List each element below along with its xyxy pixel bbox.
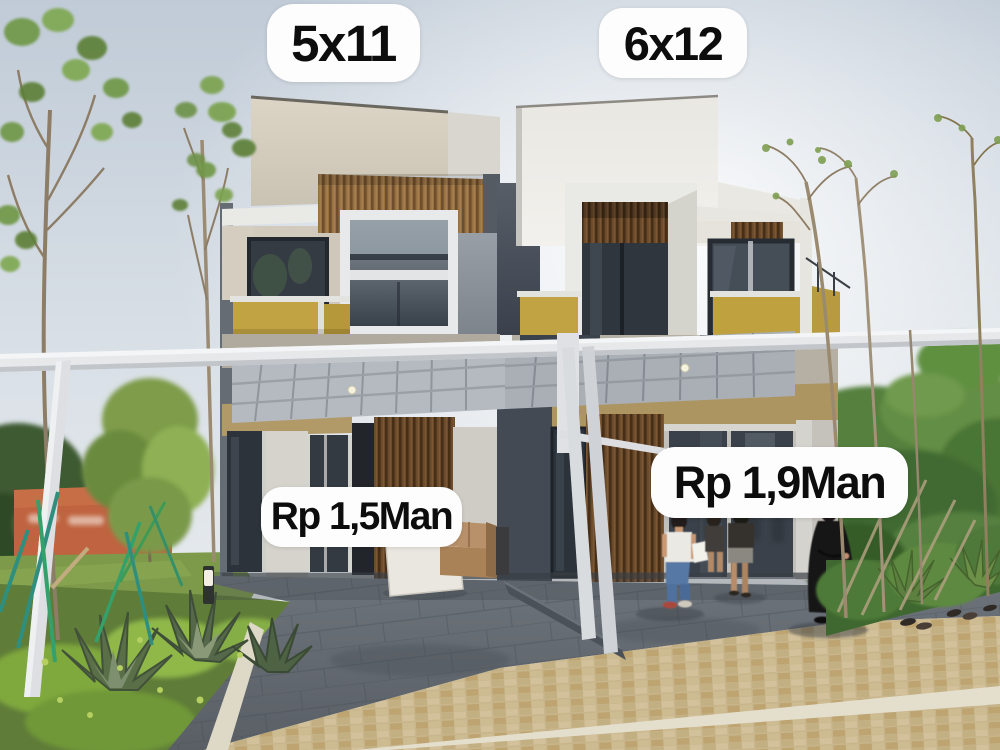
price-label-left-house: Rp 1,5Man — [261, 487, 462, 547]
canopy-light — [348, 386, 356, 394]
photo-scene — [0, 0, 1000, 750]
right-house-wood-band — [731, 222, 783, 241]
left-house-balcony — [230, 296, 350, 336]
canopy-light — [681, 364, 689, 372]
garden-bollard-light — [203, 566, 214, 604]
price-label-right-house: Rp 1,9Man — [651, 447, 908, 518]
dark-box — [496, 527, 509, 575]
listing-photo: 5x11 6x12 Rp 1,5Man Rp 1,9Man — [0, 0, 1000, 750]
size-label-right-house: 6x12 — [599, 8, 747, 78]
left-house-grey-panel — [454, 233, 500, 334]
left-house-main-window — [340, 210, 458, 336]
size-label-left-house: 5x11 — [267, 4, 420, 82]
right-house-portal — [565, 183, 697, 335]
